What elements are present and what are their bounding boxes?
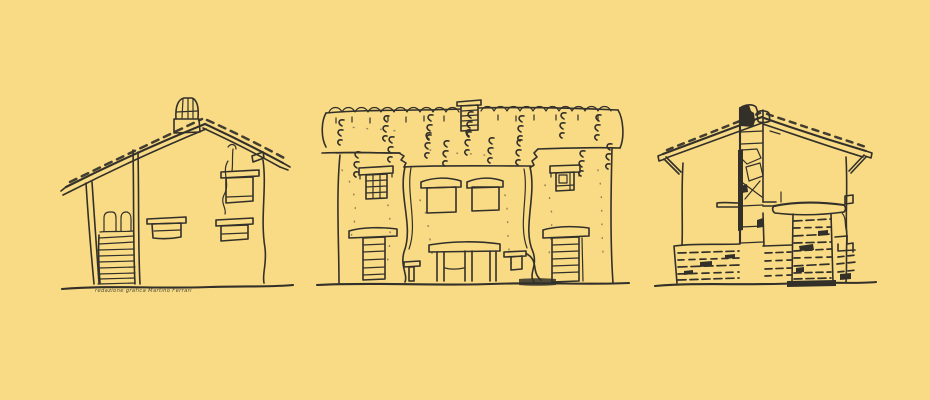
hand-drawn-houses-illustration [0, 0, 930, 400]
credit-caption: redazione grafica Martino Ferrari [95, 288, 192, 294]
illustration-page: redazione grafica Martino Ferrari [0, 0, 930, 400]
house-sketch-right [655, 105, 876, 287]
house-sketch-middle [317, 100, 629, 286]
house-sketch-left [61, 98, 293, 289]
